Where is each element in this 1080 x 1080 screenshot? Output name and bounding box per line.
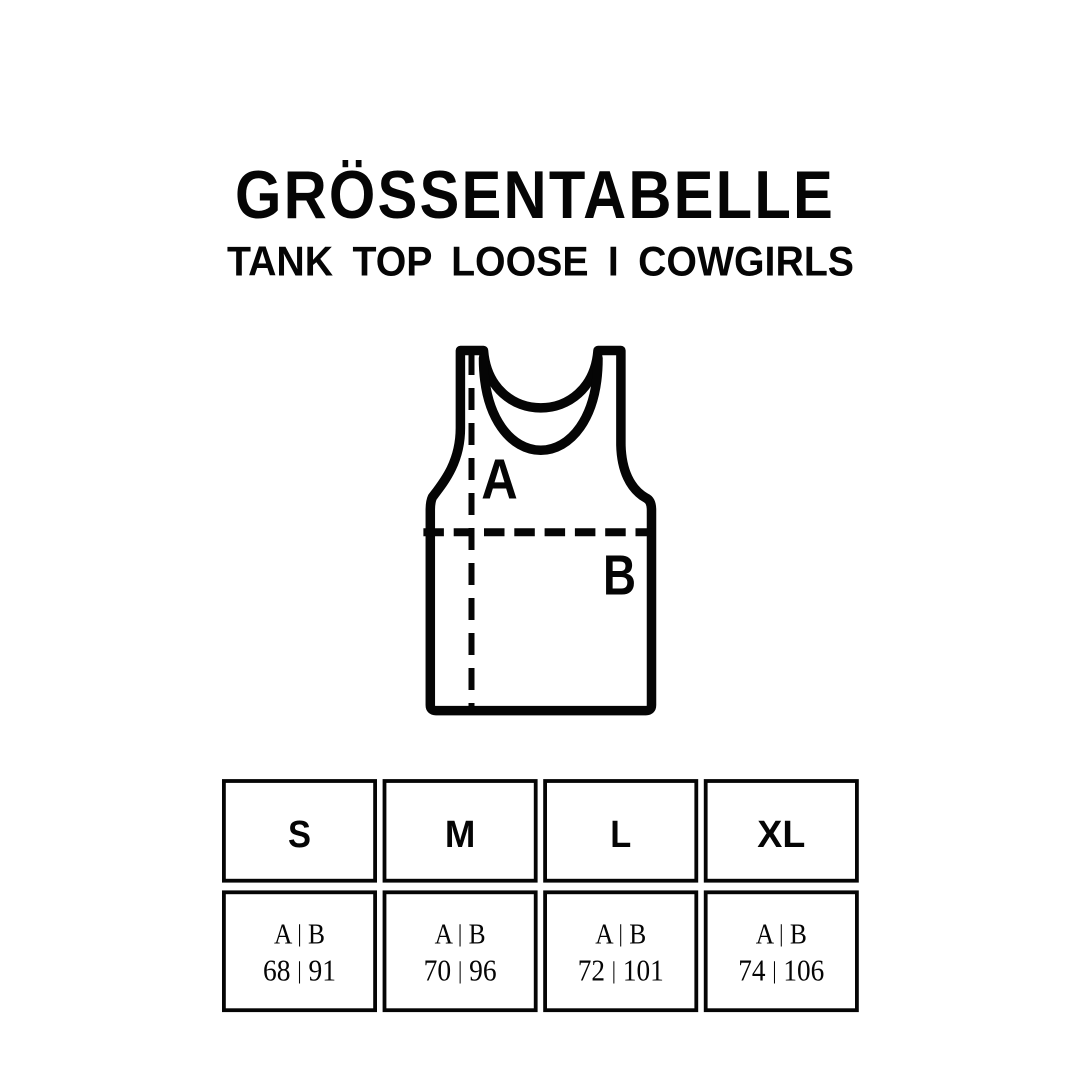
svg-text:A | B: A | B (595, 920, 646, 951)
svg-text:A: A (481, 448, 518, 512)
svg-text:L: L (610, 814, 631, 856)
svg-text:70 | 96: 70 | 96 (424, 953, 497, 988)
svg-text:B: B (603, 544, 636, 608)
svg-text:68 | 91: 68 | 91 (263, 953, 336, 988)
svg-text:TANK TOP LOOSE I COWGIRLS: TANK TOP LOOSE I COWGIRLS (227, 238, 854, 285)
svg-text:GRÖSSENTABELLE: GRÖSSENTABELLE (235, 157, 835, 233)
svg-text:A | B: A | B (435, 920, 486, 951)
svg-text:74 | 106: 74 | 106 (738, 953, 824, 988)
svg-text:A | B: A | B (274, 920, 325, 951)
svg-text:72 | 101: 72 | 101 (578, 953, 664, 988)
svg-text:XL: XL (757, 814, 805, 856)
svg-text:M: M (445, 814, 476, 856)
svg-text:A | B: A | B (756, 920, 807, 951)
svg-text:S: S (288, 814, 311, 856)
